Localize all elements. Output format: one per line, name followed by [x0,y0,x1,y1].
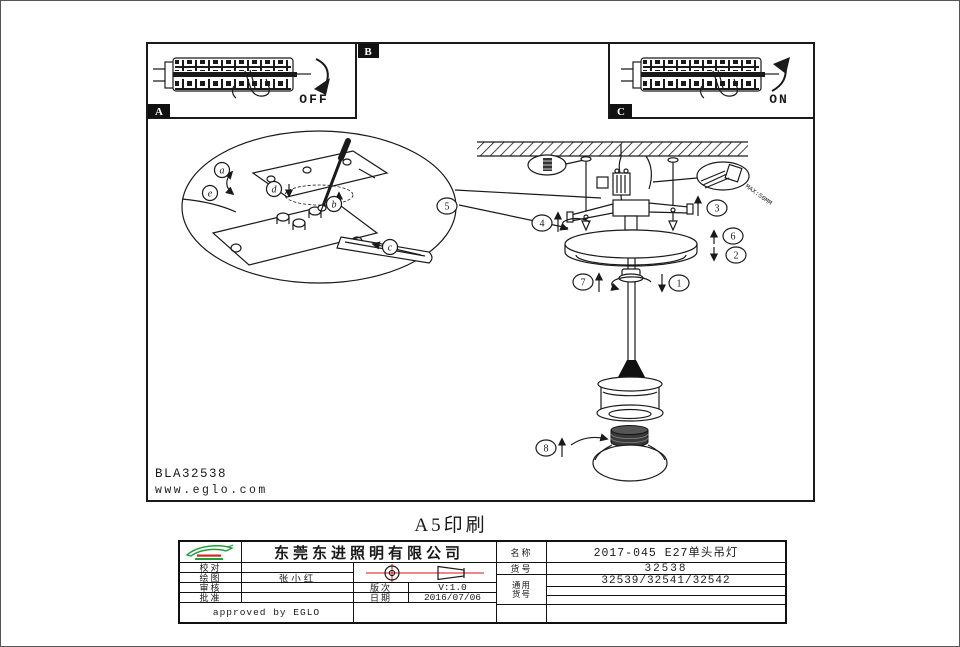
ceiling-canopy [565,230,697,266]
callout-a: a [215,163,230,178]
svg-text:b: b [332,200,337,211]
generic-label-line2: 货号 [512,589,531,599]
empty-cell [354,603,497,622]
callout-d: d [267,182,282,197]
revision-label: 版次 [354,583,409,593]
max-wire-note: MAX:50MM [744,183,773,207]
name-label: 名称 [497,542,547,563]
panel-c-breaker-on: ON C [609,43,814,118]
sku-label: 货号 [497,563,547,575]
panel-c-tag: C [610,104,632,118]
approved-note: approved by EGLO [180,603,354,622]
drawing-code: BLA32538 [155,467,227,481]
ring-nut [612,269,651,289]
svg-text:B: B [364,46,372,58]
generic-sku-values: 32539/32541/32542 [547,575,785,587]
sign-row-value [242,593,354,603]
on-label: ON [769,92,789,107]
svg-text:a: a [220,166,225,177]
mounting-screw-right [668,158,678,230]
panel-b-tag: B [358,44,379,58]
generic-sku-label: 通用 货号 [497,575,547,605]
company-logo-cell [180,542,242,563]
wall-anchor-callout [528,155,584,175]
empty-cell [547,596,785,605]
off-label: OFF [299,92,328,107]
callout-e: e [203,186,218,201]
title-block: 东莞东进照明有限公司 名称 2017-045 E27单头吊灯 校对 绘图 张小红… [178,540,787,624]
svg-text:1: 1 [677,279,682,290]
ceiling-hatch [477,142,748,156]
sign-row-value [242,563,354,573]
step-5-badge: 5 [437,198,457,214]
product-name: 2017-045 E27单头吊灯 [547,542,785,563]
projection-symbol-cell [354,563,497,583]
svg-text:c: c [388,243,393,254]
date-label: 日期 [354,593,409,603]
empty-cell [547,587,785,596]
step-2-badge: 2 [714,247,746,263]
step-3-badge: 3 [698,197,727,216]
svg-text:8: 8 [544,444,549,455]
callout-b: b [327,197,342,212]
sign-row-label: 校对 [180,563,242,573]
sign-row-value: 张小红 [242,573,354,583]
svg-text:e: e [208,189,213,200]
revision-value: V:1.0 [409,583,497,593]
projection-symbol-icon [360,563,490,583]
sign-row-label: 批准 [180,593,242,603]
svg-text:C: C [617,106,625,118]
sign-row-value [242,583,354,593]
svg-text:A: A [155,106,163,118]
step-6-badge: 6 [714,228,743,244]
empty-cell [497,605,547,622]
print-size-note: A5印刷 [386,510,516,537]
step-1-badge: 1 [662,274,689,291]
panel-a-tag: A [148,104,170,118]
sku-value: 32538 [547,563,785,575]
svg-text:5: 5 [445,202,450,213]
panel-a-breaker-off: OFF A [147,43,356,118]
step-8-badge: 8 [536,437,607,457]
step-7-badge: 7 [573,274,599,292]
lamp-holder [597,360,663,421]
off-arrow-icon [314,59,330,95]
svg-text:2: 2 [734,251,739,262]
callout-c: c [383,240,398,255]
sign-row-label: 绘图 [180,573,242,583]
svg-text:6: 6 [731,232,736,243]
website-url: www.eglo.com [155,484,268,497]
instruction-sheet: OFF A B ON C [0,0,960,647]
svg-text:4: 4 [540,219,545,230]
svg-text:7: 7 [581,278,586,289]
company-logo [182,543,240,562]
light-bulb [593,426,667,482]
empty-cell [547,605,785,622]
sign-row-label: 审核 [180,583,242,593]
svg-text:3: 3 [715,204,720,215]
company-name: 东莞东进照明有限公司 [242,542,497,563]
date-value: 2016/07/06 [409,593,497,603]
